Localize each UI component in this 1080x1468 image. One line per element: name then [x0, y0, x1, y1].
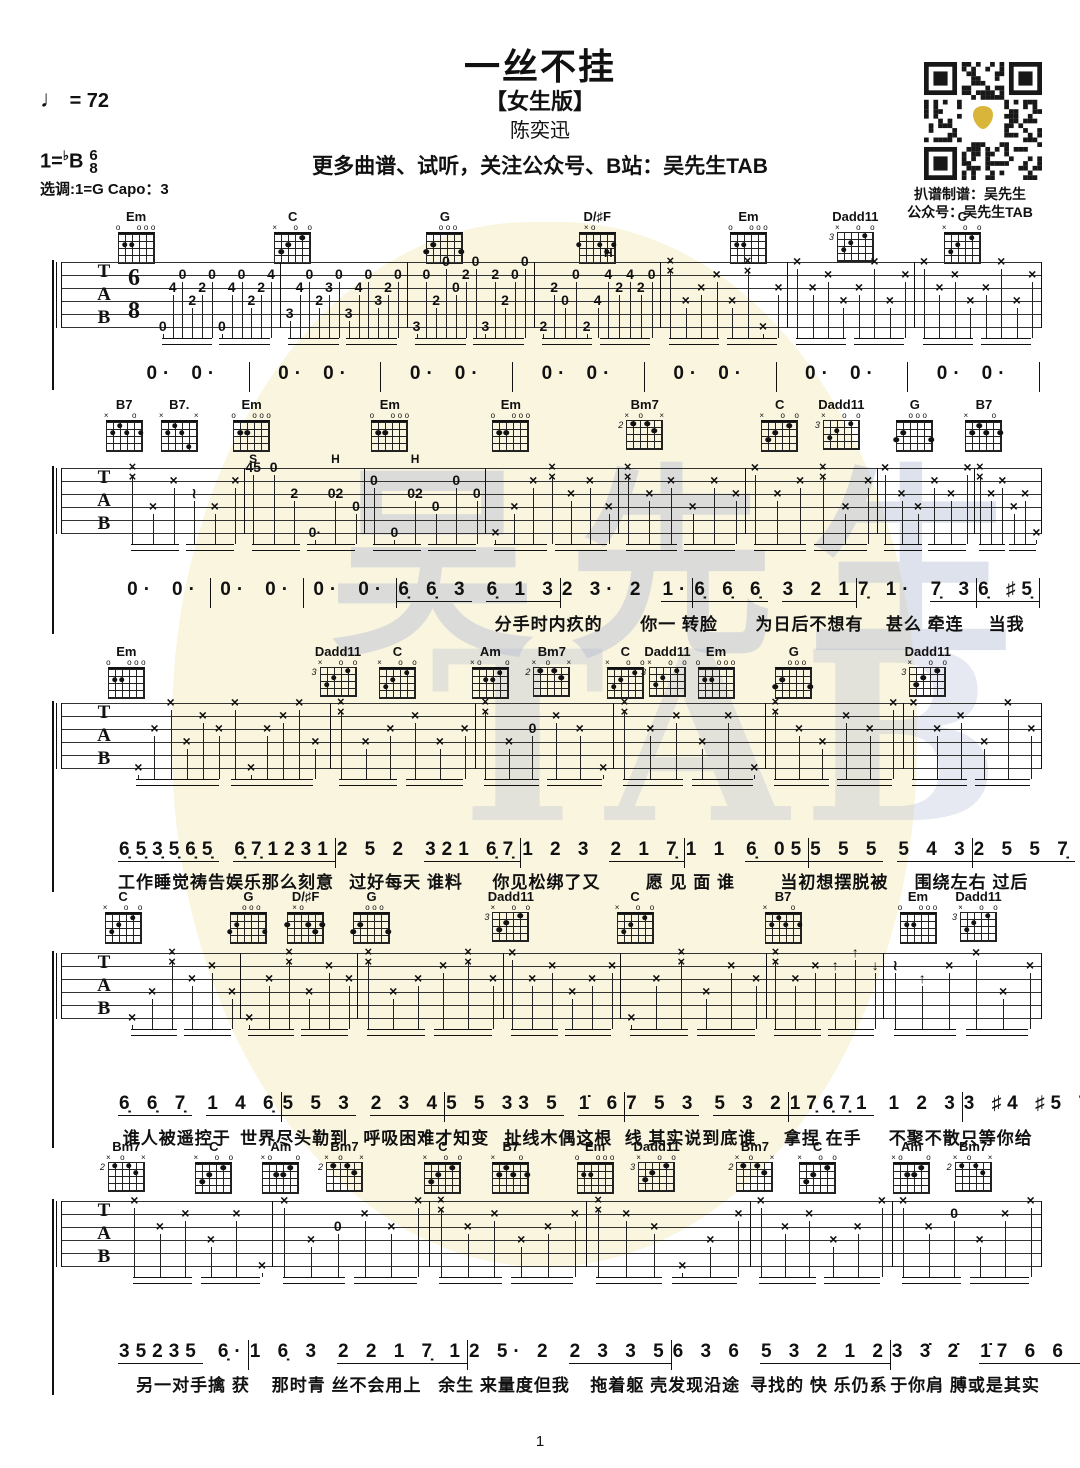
melody-measure: 2 3· 21·	[561, 578, 694, 608]
chord-finger-dot	[117, 423, 123, 429]
chord-grid	[577, 1162, 614, 1194]
tab-measure: 0002H000	[365, 468, 486, 534]
tab-note: 2	[539, 319, 547, 333]
tab-note: ×	[436, 734, 444, 748]
chord-diagram: Dadd11×oo3	[639, 645, 695, 697]
note-stem	[799, 736, 800, 779]
note-stem	[356, 514, 357, 544]
chord-grid: 3	[960, 912, 997, 942]
note-stem	[468, 1234, 469, 1277]
melody-measure: 6 3 65 3 2 1 2	[672, 1340, 891, 1370]
chord-name: C	[790, 1140, 846, 1154]
chord-diagram: C×oo	[265, 210, 321, 264]
melody-measure: 1 2 32 1 7̣	[521, 838, 685, 868]
chord-name: Em	[483, 398, 539, 412]
beam-group	[565, 1029, 611, 1036]
open-string-icon: o	[657, 1154, 661, 1162]
tab-note: ×	[811, 958, 819, 972]
chord-grid: 3	[823, 420, 860, 450]
open-string-icon: o	[933, 904, 937, 912]
note-stem	[374, 488, 375, 544]
chord-string-markers: ×o×	[108, 1154, 144, 1162]
tab-note: ××	[482, 697, 490, 717]
chord-finger-dot	[504, 430, 510, 436]
note-stem	[271, 282, 272, 338]
tab-note: ×	[710, 473, 718, 487]
chord-name: Dadd11	[483, 890, 539, 904]
note-stem	[1014, 514, 1015, 544]
note-stem	[456, 488, 457, 544]
chord-name: Am	[462, 645, 518, 659]
tab-note: ×	[307, 1232, 315, 1246]
tab-measure: ××××××××××	[661, 262, 788, 328]
chord-diagram: Emoooo	[890, 890, 946, 944]
beam-group	[231, 779, 313, 786]
note-stem	[274, 475, 275, 544]
note-stem	[800, 488, 801, 544]
chord-finger-dot	[621, 929, 627, 935]
lyrics-measure: 分手时内疚的	[482, 610, 615, 635]
note-stem	[212, 282, 213, 338]
chord-name: Em	[720, 210, 776, 224]
chord-base-fret: 3	[484, 912, 489, 922]
tab-measure: ××××≀××	[124, 468, 245, 534]
chord-finger-dot	[581, 1172, 587, 1178]
melody-note-group: 0·	[541, 363, 572, 385]
chord-finger-dot	[948, 249, 954, 255]
tab-note: ≀	[192, 486, 197, 500]
chord-finger-dot	[645, 421, 651, 427]
open-string-icon: o	[909, 412, 913, 420]
open-string-icon: o	[229, 1154, 233, 1162]
note-stem	[980, 475, 981, 544]
note-stem	[755, 475, 756, 544]
chord-finger-dot	[383, 430, 389, 436]
tab-clef: TAB	[96, 951, 112, 1020]
chord-grid: 3	[837, 232, 874, 262]
tab-note: ×	[805, 1206, 813, 1220]
note-stem	[902, 501, 903, 544]
chord-finger-dot	[285, 242, 291, 248]
note-stem	[885, 475, 886, 544]
muted-string-icon: ×	[584, 224, 589, 232]
note-stem	[1031, 1208, 1032, 1277]
note-stem	[967, 475, 968, 544]
muted-string-icon: ×	[490, 904, 495, 912]
tab-note: 0	[442, 254, 450, 268]
beam-group	[354, 1277, 416, 1284]
melody-note-group: 3 2 1	[782, 579, 856, 602]
beam-group	[542, 338, 592, 345]
chord-string-markers: ×oo	[649, 659, 685, 667]
tab-note: ××	[772, 697, 780, 717]
beam-group	[796, 338, 846, 345]
tab-note: ×	[646, 721, 654, 735]
lyrics-measure: 拖着躯 壳发现沿途	[583, 1371, 748, 1396]
tab-measure: ××××××××	[788, 262, 915, 328]
note-stem	[418, 1208, 419, 1277]
open-string-icon: o	[636, 904, 640, 912]
note-stem	[809, 1221, 810, 1277]
open-string-icon: o	[144, 224, 148, 232]
note-stem	[222, 334, 223, 338]
chord-finger-dot	[237, 430, 243, 436]
melody-note-group: 0·	[981, 363, 1012, 385]
chord-string-markers: oooo	[372, 412, 408, 420]
tab-note: ×	[935, 280, 943, 294]
chord-finger-dot	[913, 682, 919, 688]
tab-note: ×	[211, 499, 219, 513]
chord-finger-dot	[278, 249, 284, 255]
note-stem	[875, 973, 876, 1029]
tab-measure: 040220040224	[154, 262, 281, 328]
open-string-icon: o	[802, 659, 806, 667]
beam-group	[136, 779, 218, 786]
muted-string-icon: ×	[470, 659, 475, 667]
note-stem	[338, 1234, 339, 1277]
open-string-icon: o	[127, 659, 131, 667]
chord-finger-dot	[112, 677, 118, 683]
chord-finger-dot	[504, 920, 510, 926]
melody-note-group: 6 3 6	[672, 1341, 746, 1363]
muted-string-icon: ×	[567, 659, 572, 667]
note-stem	[929, 1234, 930, 1277]
tab-note: ××	[621, 697, 629, 717]
tab-measure: ××××××××	[358, 953, 504, 1019]
tab-note: ×	[231, 473, 239, 487]
tab-measure: ×××××××	[746, 468, 879, 534]
tab-annotation: H	[331, 452, 340, 466]
note-stem	[1031, 736, 1032, 779]
open-string-icon: o	[926, 904, 930, 912]
tab-measure: ××××××	[124, 1201, 273, 1267]
note-stem	[465, 736, 466, 779]
chord-diagram: Bm7×o×2	[727, 1140, 783, 1192]
open-string-icon: o	[505, 659, 509, 667]
open-string-icon: o	[791, 904, 795, 912]
melody-note-group: 0·	[357, 579, 388, 601]
open-string-icon: o	[856, 412, 860, 420]
tab-note: ×	[734, 1206, 742, 1220]
note-stem	[309, 999, 310, 1029]
chord-name: C	[95, 890, 151, 904]
tab-measure: ×××××××	[619, 468, 746, 534]
note-stem	[485, 334, 486, 338]
beam-group	[684, 544, 734, 551]
melody-note-group: 0·	[454, 363, 485, 385]
note-stem	[598, 308, 599, 338]
beam-group	[184, 1029, 230, 1036]
chord-name: G	[417, 210, 473, 224]
chord-string-markers: ×oo	[105, 904, 141, 912]
beam-group	[346, 338, 396, 345]
chord-finger-dot	[934, 668, 940, 674]
beam-group	[339, 779, 397, 786]
tab-note: 0	[335, 267, 343, 281]
tab-note: ×	[841, 499, 849, 513]
lyrics-measure: 甚么 牵连	[876, 610, 973, 635]
tab-note: ×	[842, 708, 850, 722]
note-stem	[300, 295, 301, 338]
chord-diagram: Gooo	[344, 890, 400, 944]
chord-string-markers: ooo	[776, 659, 812, 667]
tab-measure: ××××××	[904, 703, 1042, 769]
note-stem	[882, 1208, 883, 1277]
beam-group	[406, 779, 464, 786]
tab-note: ×	[947, 486, 955, 500]
muted-string-icon: ×	[907, 659, 912, 667]
tab-clef: TAB	[96, 701, 112, 770]
note-stem	[681, 960, 682, 1029]
chord-name: Bm7	[617, 398, 673, 412]
note-stem	[955, 282, 956, 338]
note-stem	[468, 960, 469, 1029]
melody-note-group: 2 5 2	[336, 839, 410, 861]
chord-finger-dot	[904, 1172, 910, 1178]
note-stem	[858, 1234, 859, 1277]
melody-measure: 2 5 2321 6̣7̣	[336, 838, 521, 868]
tab-note: ×	[258, 1258, 266, 1272]
tab-note: ×	[870, 254, 878, 268]
chord-string-markers: oooo	[577, 1154, 613, 1162]
tab-measure: 340230340320	[281, 262, 408, 328]
note-stem	[232, 295, 233, 338]
melody-note-group: 7̣ 1·	[857, 579, 916, 601]
chord-finger-dot	[525, 1172, 531, 1178]
note-stem	[991, 501, 992, 544]
note-stem	[628, 475, 629, 544]
open-string-icon: o	[370, 412, 374, 420]
chord-diagram: C×oo	[934, 210, 990, 264]
tab-note: ×	[389, 984, 397, 998]
chord-finger-dot	[200, 1179, 206, 1185]
melody-measure: 0·0·	[777, 362, 909, 392]
tab-note: ××	[285, 947, 293, 967]
song-version: 【女生版】	[0, 84, 1080, 116]
chord-finger-dot	[385, 929, 391, 935]
note-stem	[576, 282, 577, 338]
tab-note: ×	[517, 1232, 525, 1246]
chord-base-fret: 2	[318, 1162, 323, 1172]
note-stem	[649, 501, 650, 544]
tab-note: ×	[650, 1219, 658, 1233]
tab-note: 3	[286, 306, 294, 320]
melody-note-group: 0·	[145, 363, 176, 385]
chord-diagram: Gooo	[766, 645, 822, 699]
tab-measure: 45S020·02H0	[245, 468, 366, 534]
tab-note: ××	[772, 947, 780, 967]
chord-finger-dot	[376, 430, 382, 436]
tab-measure: ×××××××	[587, 1201, 751, 1267]
muted-string-icon: ×	[770, 1154, 775, 1162]
note-stem	[565, 308, 566, 338]
note-stem	[612, 973, 613, 1029]
tab-note: ×	[305, 984, 313, 998]
melody-note-group: 6̣7̣1231	[233, 839, 334, 862]
open-string-icon: o	[842, 412, 846, 420]
tab-note: 2	[315, 293, 323, 307]
note-stem	[656, 986, 657, 1029]
note-stem	[1017, 308, 1018, 338]
muted-string-icon: ×	[532, 659, 537, 667]
lyrics-measure: 当我	[973, 610, 1040, 635]
chord-finger-dot	[649, 1170, 655, 1176]
chord-string-markers: ×o	[493, 1154, 529, 1162]
tab-note: ×	[529, 473, 537, 487]
lyrics-measure	[361, 610, 482, 635]
chord-finger-dot	[112, 1163, 118, 1169]
beam-group	[626, 544, 676, 551]
open-string-icon: o	[668, 659, 672, 667]
tab-note: ×	[750, 760, 758, 774]
tab-note: ××	[437, 1195, 445, 1215]
artist-name: 陈奕迅	[0, 114, 1080, 143]
note-stem	[505, 308, 506, 338]
open-string-icon: o	[299, 904, 303, 912]
chord-finger-dot	[904, 922, 910, 928]
beam-group	[494, 544, 547, 551]
page-number: 1	[0, 1433, 1080, 1450]
tab-note: ×	[627, 1010, 635, 1024]
tab-note: ×	[295, 695, 303, 709]
chord-name: B7	[956, 398, 1012, 412]
chord-string-markers: oooo	[730, 224, 766, 232]
muted-string-icon: ×	[605, 659, 610, 667]
open-string-icon: o	[249, 904, 253, 912]
open-string-icon: o	[458, 1154, 462, 1162]
tab-note: ×	[215, 721, 223, 735]
open-string-icon: o	[763, 224, 767, 232]
chord-name: Dadd11	[900, 645, 956, 659]
chord-base-fret: 2	[947, 1162, 952, 1172]
melody-measure: 7 5 35 3 2	[625, 1092, 789, 1122]
note-stem	[710, 1247, 711, 1277]
note-stem	[682, 1273, 683, 1277]
note-stem	[934, 488, 935, 544]
lyrics-line: 分手时内疚的你一 转脸为日后不想有甚么 牵连当我	[118, 610, 1040, 635]
note-stem	[924, 269, 925, 338]
staff-start-barline	[56, 262, 62, 328]
note-stem	[525, 269, 526, 338]
beam-group	[623, 779, 683, 786]
chord-string-markers: ×oo	[320, 659, 356, 667]
note-stem	[575, 1221, 576, 1277]
tab-note: ×	[149, 499, 157, 513]
melody-note-group: 5 3 2	[713, 1093, 787, 1116]
melody-measure: 352356̣·	[118, 1340, 249, 1370]
tab-note: 0	[529, 721, 537, 735]
note-stem	[845, 514, 846, 544]
tab-note: ×	[795, 721, 803, 735]
chord-diagram: B7×o	[96, 398, 152, 452]
chord-finger-dot	[787, 423, 793, 429]
chord-name: Em	[890, 890, 946, 904]
open-string-icon: o	[650, 904, 654, 912]
melody-measure: 0·0·	[908, 362, 1040, 392]
chord-string-markers: ×oo	[837, 224, 873, 232]
chord-string-markers: ×oo	[910, 659, 946, 667]
chord-finger-dot	[350, 929, 356, 935]
chord-finger-dot	[429, 1179, 435, 1185]
melody-note-group: 0·	[936, 363, 967, 385]
open-string-icon: o	[259, 412, 263, 420]
tab-measure: ×××××××	[430, 1201, 587, 1267]
note-stem	[870, 736, 871, 779]
open-string-icon: o	[138, 904, 142, 912]
tab-note: ××	[364, 947, 372, 967]
tab-note: ×	[706, 1232, 714, 1246]
note-stem	[552, 973, 553, 1029]
chord-finger-dot	[929, 437, 935, 443]
jianpu-melody-line: 0·0·0·0·0·0·0·0·0·0·0·0·0·0·	[118, 362, 1040, 392]
melody-note-group: 7 5 3	[625, 1093, 699, 1116]
muted-string-icon: ×	[636, 1154, 641, 1162]
tab-note: ×	[1013, 293, 1021, 307]
note-stem	[630, 282, 631, 338]
note-stem	[309, 282, 310, 338]
open-string-icon: o	[137, 224, 141, 232]
open-string-icon: o	[591, 224, 595, 232]
chord-finger-dot	[383, 684, 389, 690]
staff-measures: ××××≀××45S020·02H00002H000××××××××××××××…	[124, 468, 1042, 534]
tab-note: ×	[1026, 958, 1034, 972]
note-stem	[693, 514, 694, 544]
note-stem	[823, 475, 824, 544]
note-stem	[754, 775, 755, 779]
note-stem	[341, 710, 342, 779]
note-stem	[152, 999, 153, 1029]
tab-note: ×	[156, 1219, 164, 1233]
chord-finger-dot	[780, 677, 786, 683]
note-stem	[521, 1247, 522, 1277]
chord-finger-dot	[803, 1179, 809, 1185]
beam-group	[248, 1029, 294, 1036]
note-stem	[138, 775, 139, 779]
note-stem	[732, 308, 733, 338]
muted-string-icon: ×	[964, 412, 969, 420]
melody-note-group: 6̣·	[217, 1341, 248, 1363]
melody-note-group: 1 6̣ 3	[249, 1341, 323, 1363]
beam-group	[162, 338, 212, 345]
muted-string-icon: ×	[104, 412, 109, 420]
tab-note: ×	[793, 254, 801, 268]
jianpu-melody-line: 352356̣·1 6̣ 32 2 1 7̣ 12 5· 22 3 3 56 3…	[118, 1340, 1040, 1370]
muted-string-icon: ×	[735, 1154, 740, 1162]
chord-diagram: C×oo	[95, 890, 151, 944]
open-string-icon: o	[134, 659, 138, 667]
chord-finger-dot	[969, 235, 975, 241]
chord-string-markers: ×o	[966, 412, 1002, 420]
note-stem	[980, 1247, 981, 1277]
note-stem	[761, 1208, 762, 1277]
chord-string-markers: ×o	[288, 904, 324, 912]
chord-string-markers: oooo	[698, 659, 734, 667]
tab-note: ×	[796, 473, 804, 487]
open-string-icon: o	[412, 659, 416, 667]
melody-note-group: 6̣ 6̣ 3	[397, 579, 471, 602]
lyrics-measure	[118, 610, 239, 635]
open-string-icon: o	[339, 659, 343, 667]
tab-note: ×	[228, 984, 236, 998]
chord-string-markers: ×oo	[472, 659, 508, 667]
melody-note-group: 2 3· 2	[561, 579, 648, 601]
chord-base-fret: 3	[901, 667, 906, 677]
tab-note: 0	[452, 473, 460, 487]
note-stem	[731, 973, 732, 1029]
note-stem	[797, 269, 798, 338]
tab-note: ×	[599, 760, 607, 774]
note-stem	[598, 1208, 599, 1277]
